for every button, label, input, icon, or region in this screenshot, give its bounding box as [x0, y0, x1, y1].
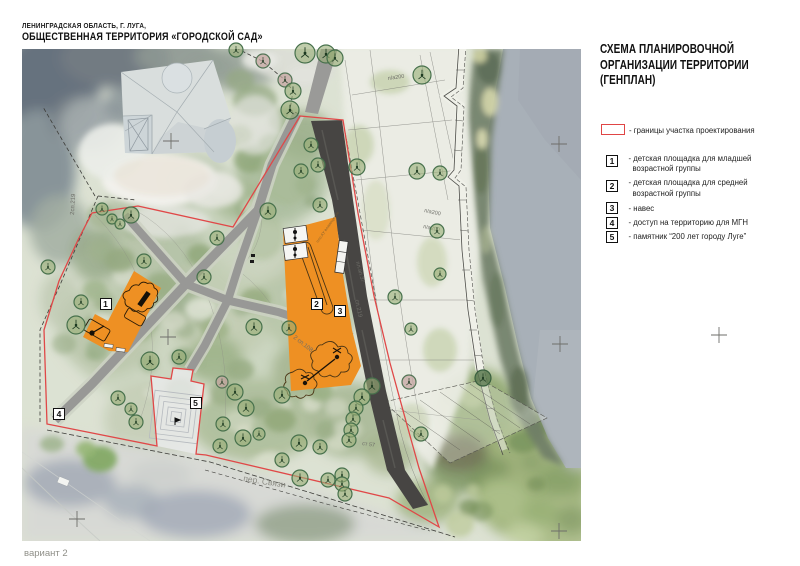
- svg-text:2сп.219: 2сп.219: [70, 193, 77, 215]
